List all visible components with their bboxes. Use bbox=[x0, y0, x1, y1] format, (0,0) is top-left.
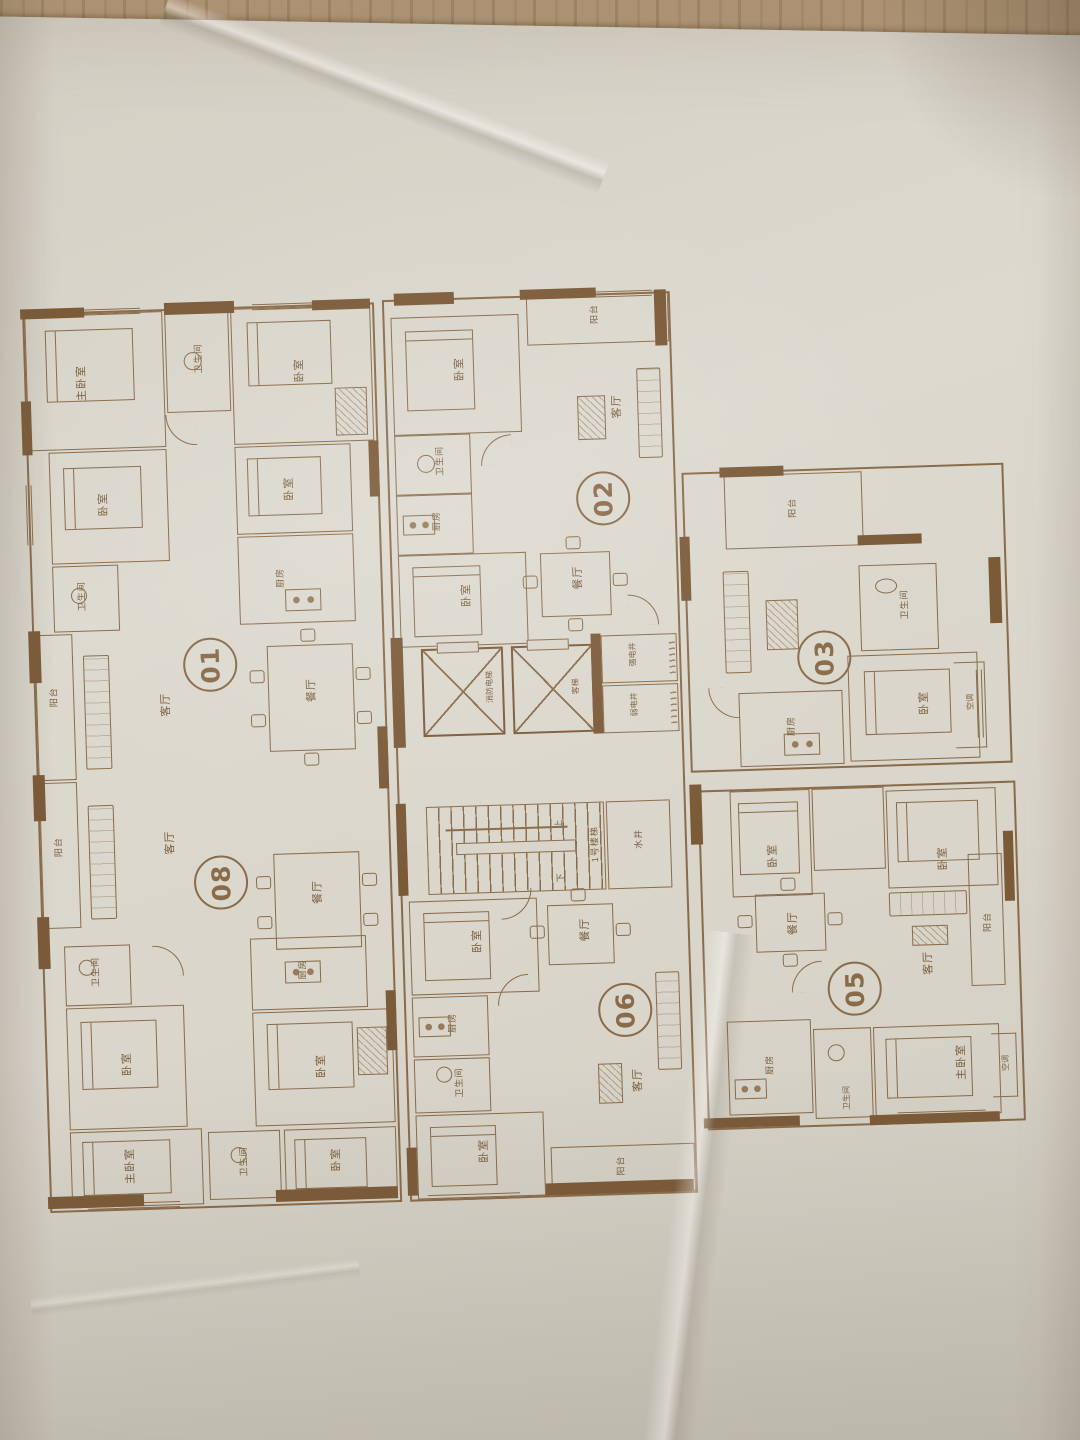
wall-segment bbox=[37, 917, 51, 969]
wall-segment bbox=[988, 557, 1002, 623]
wall-segment bbox=[654, 289, 668, 345]
u06-sofa bbox=[655, 971, 682, 1070]
u05-bathroom-top bbox=[811, 787, 886, 871]
u08-master-bed bbox=[82, 1139, 172, 1196]
u02-stove bbox=[403, 515, 436, 536]
u05-ac-label: 空调 bbox=[1002, 1055, 1010, 1071]
wall-segment bbox=[28, 631, 42, 683]
u02-living-label: 客厅 bbox=[611, 394, 623, 418]
u03-balcony-label: 阳台 bbox=[788, 498, 798, 518]
u03-bath-label: 卫生间 bbox=[900, 589, 910, 619]
water-well-label: 水井 bbox=[634, 829, 644, 849]
u08-bed-br-bed bbox=[294, 1137, 368, 1189]
staircase bbox=[426, 801, 607, 895]
wall-segment bbox=[394, 292, 454, 306]
u03-sofa bbox=[723, 571, 752, 674]
u01-master-bed bbox=[45, 328, 135, 403]
u08-living-label: 客厅 bbox=[165, 830, 177, 854]
u08-wardrobe bbox=[357, 1026, 388, 1075]
u02-balcony-label: 阳台 bbox=[590, 304, 600, 324]
wall-segment bbox=[20, 308, 84, 320]
u08-sofa bbox=[88, 805, 118, 920]
u01-bed-tr-bed bbox=[246, 320, 332, 387]
wall-segment bbox=[386, 990, 398, 1050]
floor-plan-drawing: 主卧室 卫生间 卧室 卧室 卧室 厨房 卫生间 阳台 客厅 餐厅 01 阳台 客… bbox=[14, 271, 1031, 1226]
chair bbox=[355, 667, 370, 680]
chair bbox=[256, 876, 271, 889]
passenger-elevator-label: 客梯 bbox=[572, 678, 580, 694]
u02-bed-bottom-bed bbox=[412, 565, 482, 637]
chair bbox=[530, 925, 545, 938]
photo-of-floor-plan: 主卧室 卫生间 卧室 卧室 卧室 厨房 卫生间 阳台 客厅 餐厅 01 阳台 客… bbox=[0, 0, 1080, 1440]
u01-wardrobe bbox=[335, 387, 368, 436]
chair bbox=[827, 912, 842, 925]
u05-living-label: 客厅 bbox=[923, 951, 935, 975]
chair bbox=[570, 888, 585, 901]
u06-bath-label: 卫生间 bbox=[455, 1067, 465, 1097]
chair bbox=[257, 916, 272, 929]
u01-bed-mr-bed bbox=[247, 456, 323, 516]
fire-elevator-label: 消防电梯 bbox=[486, 671, 495, 703]
u01-balcony-label: 阳台 bbox=[49, 687, 59, 707]
stair-name-label: 1号楼梯 bbox=[590, 826, 600, 862]
wall-segment bbox=[719, 466, 783, 478]
u05-kitchen-label: 厨房 bbox=[765, 1055, 775, 1075]
u02-dining-table bbox=[540, 551, 612, 617]
chair bbox=[357, 711, 372, 724]
wall-segment bbox=[377, 726, 389, 788]
u03-coffee-table bbox=[765, 599, 799, 650]
u02-bath-label: 卫生间 bbox=[435, 446, 445, 476]
passenger-elevator-door bbox=[527, 638, 569, 650]
shaft-louver-top bbox=[669, 639, 676, 673]
u02-sofa bbox=[636, 367, 663, 458]
chair bbox=[304, 752, 319, 765]
passenger-elevator-shaft bbox=[511, 644, 596, 735]
u05-balcony-label: 阳台 bbox=[983, 912, 993, 932]
u06-tv-cabinet bbox=[598, 1063, 623, 1104]
stair-landing bbox=[456, 839, 576, 855]
wall-segment bbox=[679, 537, 691, 601]
u06-bed-bottom-bed bbox=[430, 1125, 498, 1187]
weak-shaft-label: 弱电井 bbox=[630, 692, 639, 716]
chair bbox=[613, 573, 628, 586]
wall-segment bbox=[689, 784, 703, 844]
u05-tv-cabinet bbox=[912, 925, 949, 946]
wall-segment bbox=[33, 775, 46, 821]
u08-stove bbox=[285, 960, 322, 983]
wall-segment bbox=[312, 299, 370, 311]
u08-dining-table bbox=[273, 851, 362, 950]
u05-dining-table bbox=[755, 893, 827, 953]
stair-direction-arrow bbox=[446, 826, 568, 831]
u05-master-bed bbox=[885, 1036, 973, 1099]
wall-segment bbox=[857, 533, 921, 545]
stair-up-label: 上 bbox=[555, 818, 564, 828]
fire-elevator-door bbox=[437, 641, 479, 653]
u05-bed-left-bed bbox=[738, 801, 800, 875]
chair bbox=[783, 953, 798, 966]
chair bbox=[300, 628, 315, 641]
u05-stove bbox=[735, 1078, 768, 1099]
u01-kitchen-label: 厨房 bbox=[276, 568, 286, 588]
strong-shaft-label: 强电井 bbox=[629, 642, 638, 666]
wall-segment bbox=[21, 401, 33, 455]
u01-bed-ml-bed bbox=[63, 466, 143, 530]
u01-stove bbox=[285, 588, 322, 611]
u06-balcony-label: 阳台 bbox=[616, 1155, 626, 1175]
chair bbox=[362, 873, 377, 886]
chair bbox=[363, 913, 378, 926]
chair bbox=[565, 536, 580, 549]
u08-bed-ml-bed bbox=[80, 1020, 158, 1090]
u02-bed-top-bed bbox=[405, 329, 475, 411]
chair bbox=[780, 877, 795, 890]
chair bbox=[616, 923, 631, 936]
u03-ac-label: 空调 bbox=[967, 694, 975, 710]
shaft-louver-bottom bbox=[670, 689, 677, 723]
u06-stove bbox=[418, 1016, 451, 1037]
weak-electric-shaft bbox=[602, 683, 679, 733]
u01-sofa bbox=[83, 655, 113, 770]
u06-bed-top-bed bbox=[423, 911, 491, 981]
chair bbox=[568, 618, 583, 631]
chair bbox=[251, 714, 266, 727]
u06-bathroom bbox=[414, 1057, 492, 1113]
chair bbox=[523, 575, 538, 588]
u05-bath-label: 卫生间 bbox=[843, 1086, 852, 1110]
u03-bed bbox=[864, 669, 952, 736]
chair bbox=[249, 670, 264, 683]
u08-balcony-label: 阳台 bbox=[54, 837, 64, 857]
stair-down-label: 下 bbox=[556, 872, 565, 882]
u05-bed-right-bed bbox=[896, 800, 980, 863]
u06-dining-table bbox=[547, 903, 615, 965]
chair bbox=[737, 915, 752, 928]
u01-dining-table bbox=[267, 643, 356, 752]
u01-living-label: 客厅 bbox=[161, 692, 173, 716]
u06-living-label: 客厅 bbox=[633, 1068, 645, 1092]
u05-sofa bbox=[889, 890, 968, 916]
wall-segment bbox=[164, 301, 234, 315]
u02-tv-cabinet bbox=[577, 395, 606, 440]
u01-kitchen bbox=[237, 533, 356, 625]
strong-electric-shaft bbox=[601, 633, 678, 683]
u03-stove bbox=[784, 733, 821, 756]
u08-bed-mr-bed bbox=[267, 1021, 355, 1090]
wall-segment bbox=[368, 440, 380, 496]
wall-segment bbox=[407, 1148, 419, 1196]
